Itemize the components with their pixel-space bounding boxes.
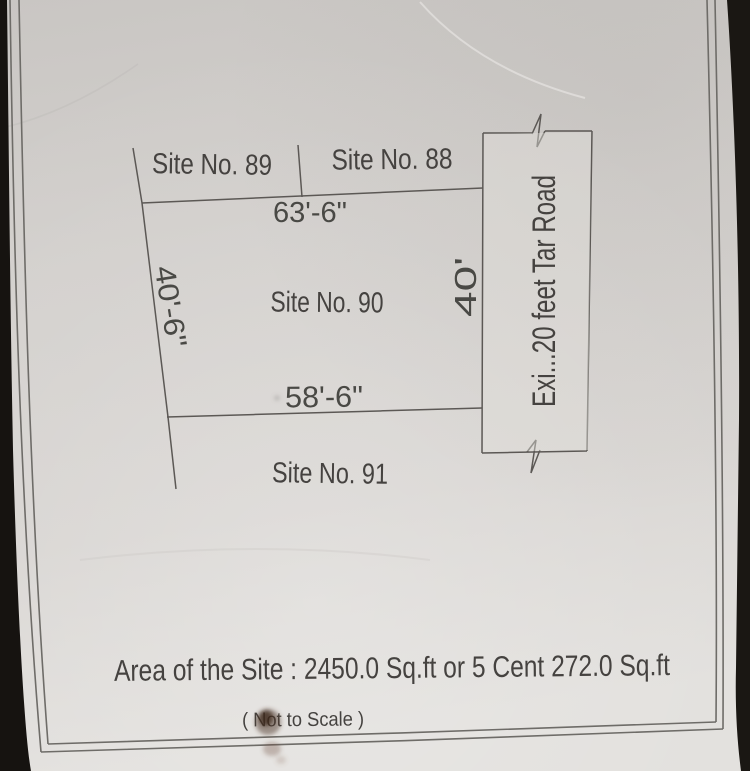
tar-road-label: Exi...20 feet Tar Road	[526, 175, 562, 407]
right-side-dimension: 40'	[448, 257, 483, 317]
site-91-label: Site No. 91	[272, 457, 388, 491]
site-90-label: Site No. 90	[270, 287, 383, 320]
smudge-core	[259, 710, 273, 726]
site-plan-photo: Site No. 89 Site No. 88 Site No. 90 Site…	[0, 0, 750, 771]
smudge-tail	[263, 742, 281, 756]
area-note: Area of the Site : 2450.0 Sq.ft or 5 Cen…	[114, 649, 671, 688]
site-88-label: Site No. 88	[331, 143, 452, 176]
site-plan-drawing: Site No. 89 Site No. 88 Site No. 90 Site…	[0, 0, 750, 771]
bottom-width-dimension: 58'-6"	[285, 381, 363, 415]
smudge-speck	[276, 756, 286, 764]
top-width-dimension: 63'-6"	[273, 197, 347, 229]
paper-speck	[275, 396, 280, 400]
site-89-label: Site No. 89	[152, 148, 272, 182]
